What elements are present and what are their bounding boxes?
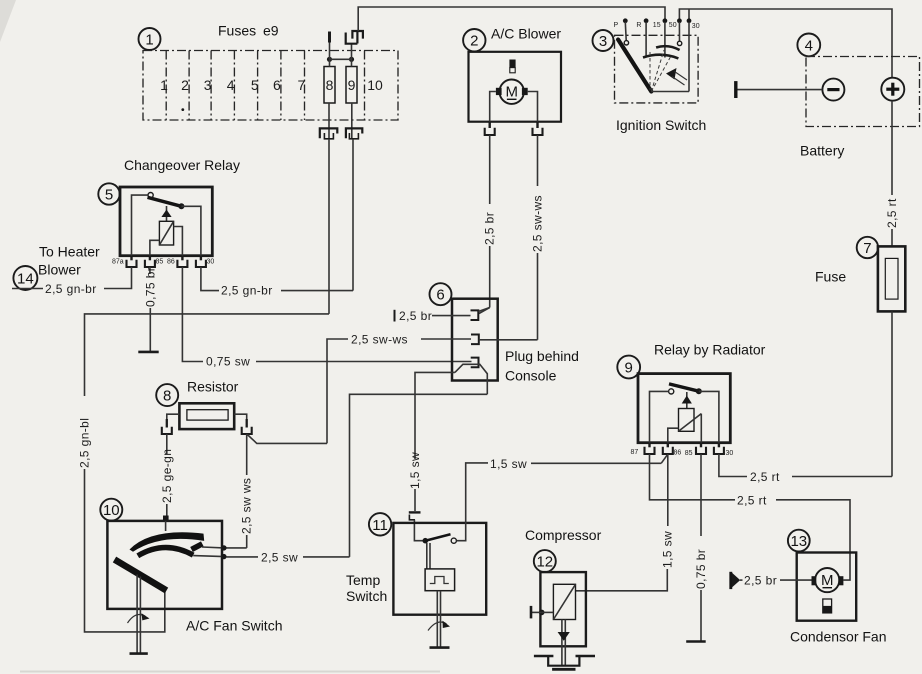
svg-text:7: 7 [863,240,871,257]
svg-text:9: 9 [625,360,633,377]
svg-text:10: 10 [367,77,383,93]
svg-text:R: R [636,22,641,29]
svg-text:2,5 rt: 2,5 rt [885,198,899,228]
svg-text:0,75 br: 0,75 br [694,549,708,589]
svg-text:2: 2 [181,77,189,93]
svg-text:P: P [614,22,619,29]
svg-text:A/C Blower: A/C Blower [491,26,561,42]
svg-text:2,5 gn-bl: 2,5 gn-bl [78,418,92,468]
svg-text:Fuse: Fuse [815,269,846,285]
svg-text:1,5 sw: 1,5 sw [660,531,674,568]
svg-text:8: 8 [163,388,171,405]
svg-text:Console: Console [505,368,557,384]
svg-text:4: 4 [805,37,813,54]
svg-text:30: 30 [692,23,700,30]
svg-text:e9: e9 [263,23,279,39]
svg-text:To Heater: To Heater [39,244,100,260]
svg-text:87a: 87a [112,259,124,266]
svg-text:5: 5 [105,187,113,204]
svg-text:5: 5 [251,77,259,93]
svg-text:86: 86 [674,450,682,457]
svg-text:86: 86 [167,259,175,266]
svg-text:Relay by Radiator: Relay by Radiator [654,342,766,358]
svg-text:4: 4 [227,77,235,93]
svg-text:Resistor: Resistor [187,379,239,395]
svg-text:3: 3 [599,33,607,50]
svg-text:Ignition Switch: Ignition Switch [616,117,706,133]
svg-text:8: 8 [326,77,334,93]
svg-text:85: 85 [156,259,164,266]
svg-text:6: 6 [436,287,444,304]
svg-text:1: 1 [145,32,153,49]
svg-text:Blower: Blower [38,262,81,278]
svg-text:0,75 sw: 0,75 sw [206,355,250,369]
svg-text:2,5 br: 2,5 br [483,212,497,245]
svg-text:2: 2 [470,33,478,50]
svg-text:Compressor: Compressor [525,527,602,543]
svg-text:Plug behind: Plug behind [505,348,579,364]
svg-text:2,5 rt: 2,5 rt [750,470,780,484]
svg-text:1,5 sw: 1,5 sw [408,452,422,489]
svg-text:Changeover Relay: Changeover Relay [124,157,240,173]
svg-text:10: 10 [103,502,120,519]
svg-text:2,5 br: 2,5 br [399,309,432,323]
svg-text:6: 6 [273,77,281,93]
svg-text:0,75 br: 0,75 br [143,267,157,307]
svg-text:Fuses: Fuses [218,23,256,39]
svg-text:15: 15 [653,22,661,29]
svg-text:Battery: Battery [800,143,844,159]
svg-text:M: M [821,572,834,589]
svg-text:2,5 sw: 2,5 sw [261,551,298,565]
svg-text:13: 13 [790,533,807,550]
svg-text:Switch: Switch [346,588,387,604]
svg-text:Temp: Temp [346,572,380,588]
svg-text:12: 12 [536,554,553,571]
svg-text:2,5 sw ws: 2,5 sw ws [240,478,254,534]
svg-text:14: 14 [17,271,34,288]
svg-text:50: 50 [669,22,677,29]
svg-text:2,5 br: 2,5 br [744,574,777,588]
svg-text:2,5 rt: 2,5 rt [737,494,767,508]
svg-text:11: 11 [372,517,388,534]
svg-text:1: 1 [160,77,168,93]
svg-text:1,5 sw: 1,5 sw [490,457,527,471]
svg-text:3: 3 [204,77,212,93]
svg-text:Condensor Fan: Condensor Fan [790,629,887,645]
svg-text:2,5 sw-ws: 2,5 sw-ws [531,195,545,252]
svg-text:7: 7 [298,77,306,93]
svg-text:85: 85 [685,450,693,457]
svg-text:30: 30 [207,259,215,266]
svg-text:30: 30 [726,450,734,457]
svg-text:87: 87 [631,449,639,456]
svg-text:A/C Fan Switch: A/C Fan Switch [186,618,282,634]
svg-text:9: 9 [348,77,356,93]
svg-text:2,5 ge-gn: 2,5 ge-gn [160,449,174,503]
svg-text:M: M [505,84,518,101]
svg-text:2,5 gn-br: 2,5 gn-br [45,282,97,296]
svg-text:2,5 gn-br: 2,5 gn-br [221,284,273,298]
svg-text:2,5 sw-ws: 2,5 sw-ws [351,333,408,347]
